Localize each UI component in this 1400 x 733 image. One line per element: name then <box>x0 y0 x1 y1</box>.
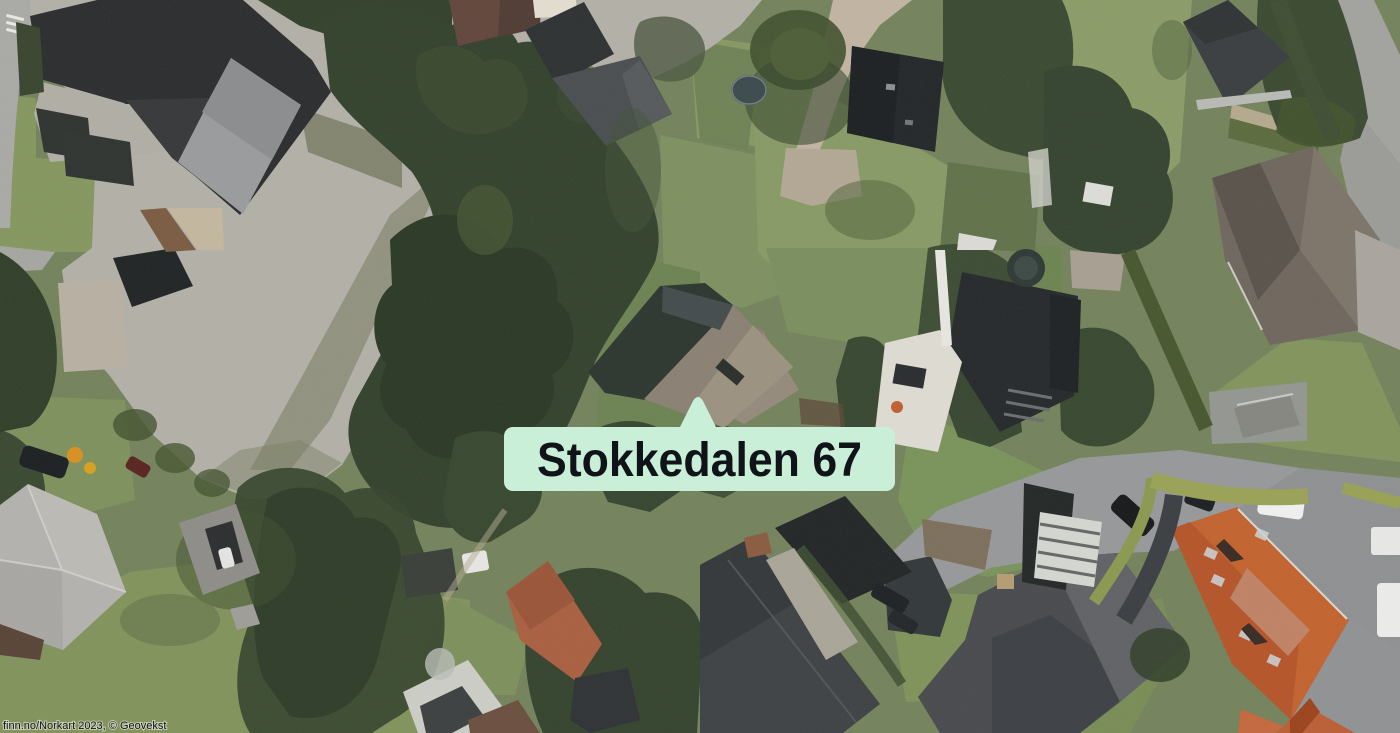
svg-text:finn.no/Norkart 2023, © Geovek: finn.no/Norkart 2023, © Geovekst <box>3 720 166 732</box>
svg-text:Stokkedalen 67: Stokkedalen 67 <box>537 434 862 487</box>
